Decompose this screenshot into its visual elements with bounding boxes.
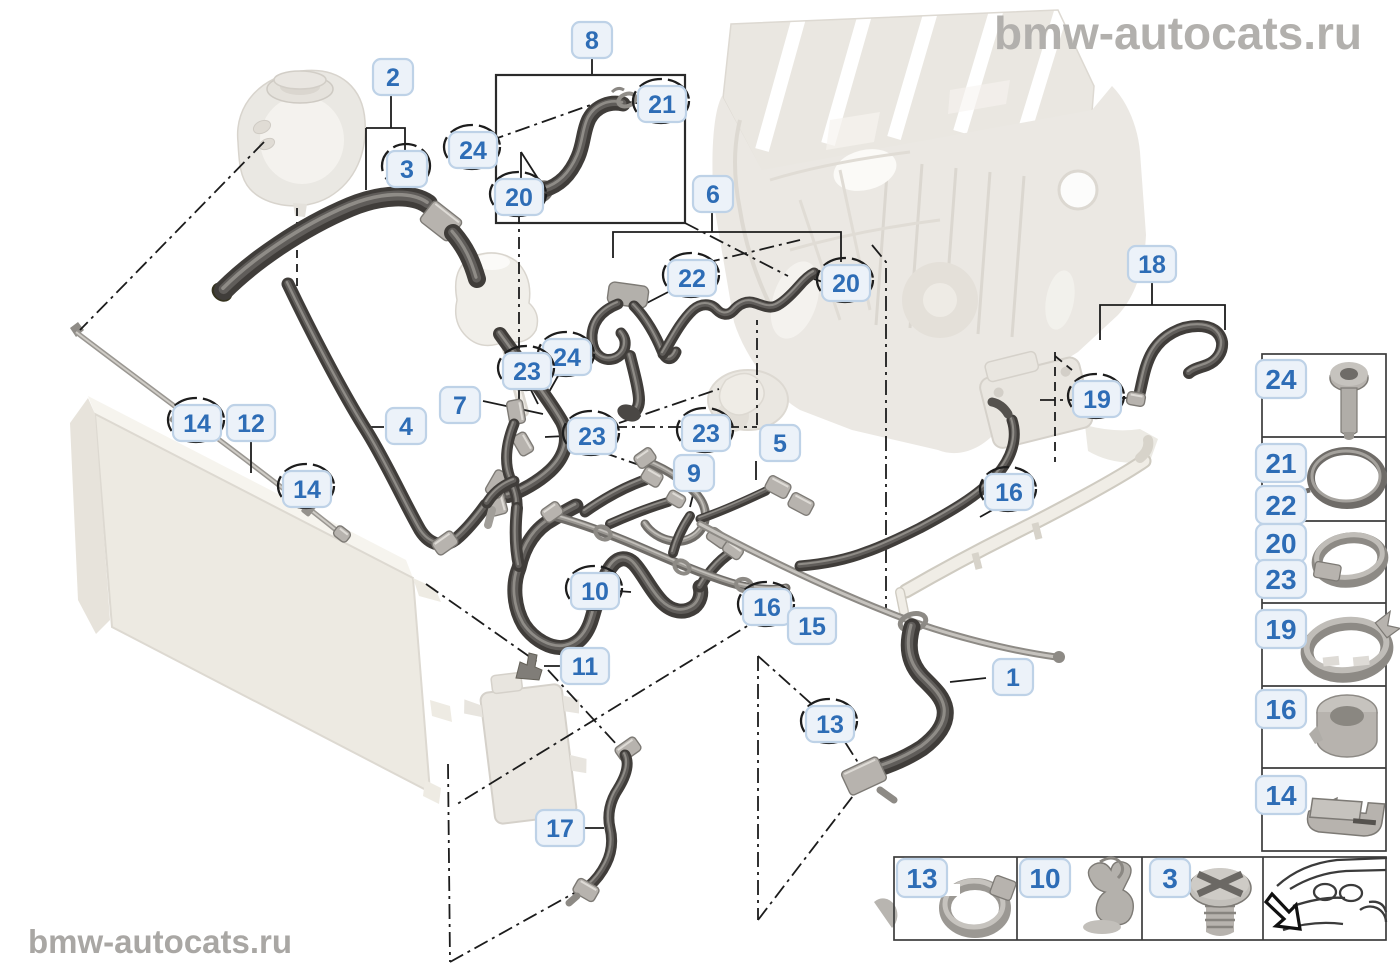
svg-text:3: 3	[400, 156, 414, 184]
svg-text:22: 22	[678, 265, 706, 293]
svg-text:10: 10	[1029, 863, 1060, 894]
svg-text:9: 9	[687, 460, 701, 488]
svg-text:21: 21	[648, 91, 676, 119]
svg-text:13: 13	[906, 863, 937, 894]
svg-text:14: 14	[1265, 780, 1297, 811]
svg-text:13: 13	[816, 711, 844, 739]
svg-text:23: 23	[513, 358, 541, 386]
svg-text:18: 18	[1138, 251, 1166, 279]
svg-text:19: 19	[1083, 386, 1111, 414]
svg-text:20: 20	[505, 184, 533, 212]
svg-text:23: 23	[578, 423, 606, 451]
svg-text:1: 1	[1006, 664, 1020, 692]
svg-text:10: 10	[581, 578, 609, 606]
svg-text:16: 16	[995, 479, 1023, 507]
svg-text:23: 23	[1265, 564, 1296, 595]
svg-text:12: 12	[237, 410, 265, 438]
svg-text:16: 16	[1265, 694, 1296, 725]
svg-text:20: 20	[1265, 528, 1296, 559]
svg-text:17: 17	[546, 815, 574, 843]
svg-text:14: 14	[293, 476, 321, 504]
svg-text:22: 22	[1265, 490, 1296, 521]
svg-text:3: 3	[1162, 863, 1178, 894]
svg-text:24: 24	[1265, 364, 1297, 395]
svg-text:16: 16	[753, 594, 781, 622]
svg-text:8: 8	[585, 27, 599, 55]
svg-text:14: 14	[183, 410, 211, 438]
svg-text:23: 23	[692, 420, 720, 448]
svg-text:19: 19	[1265, 614, 1296, 645]
svg-text:6: 6	[706, 181, 720, 209]
svg-text:4: 4	[399, 413, 413, 441]
svg-text:21: 21	[1265, 448, 1296, 479]
svg-text:bmw-autocats.ru: bmw-autocats.ru	[994, 7, 1362, 59]
svg-text:5: 5	[773, 430, 787, 458]
svg-text:24: 24	[553, 344, 581, 372]
svg-text:7: 7	[453, 392, 467, 420]
svg-text:2: 2	[386, 64, 400, 92]
svg-text:bmw-autocats.ru: bmw-autocats.ru	[28, 923, 292, 960]
svg-text:15: 15	[798, 613, 826, 641]
svg-text:11: 11	[572, 653, 599, 681]
svg-text:20: 20	[832, 270, 860, 298]
svg-text:24: 24	[459, 137, 487, 165]
